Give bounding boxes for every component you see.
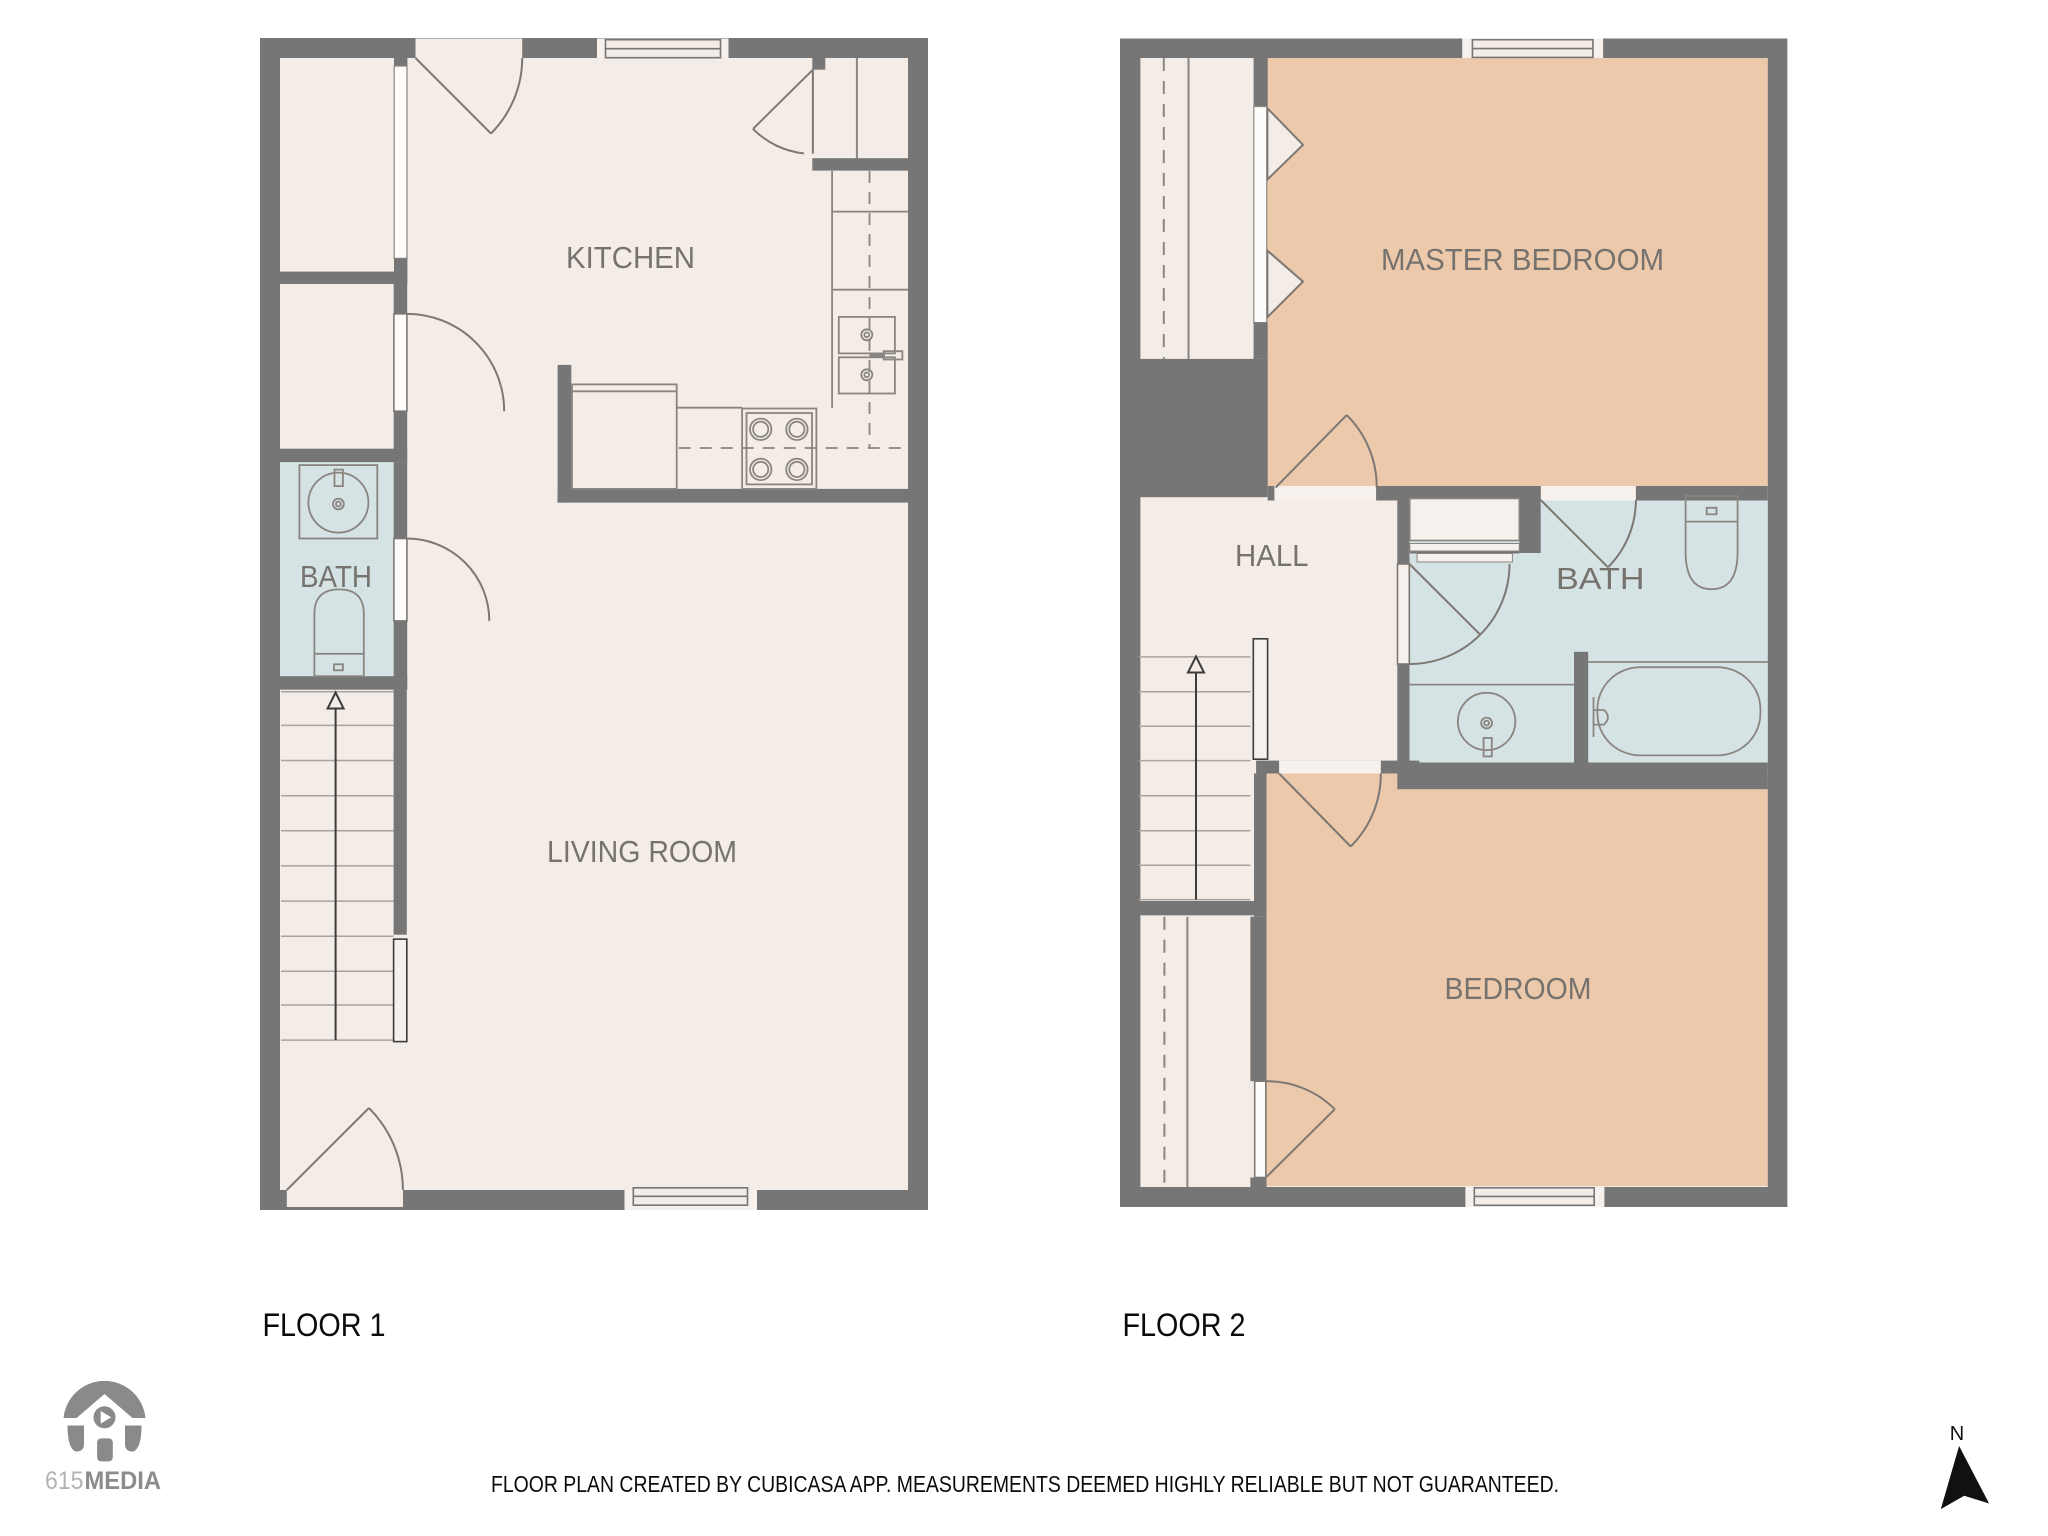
svg-text:MEDIA: MEDIA bbox=[85, 1467, 162, 1495]
svg-text:LIVING ROOM: LIVING ROOM bbox=[547, 834, 737, 869]
svg-text:MASTER BEDROOM: MASTER BEDROOM bbox=[1381, 242, 1664, 277]
svg-text:FLOOR PLAN CREATED BY CUBICASA: FLOOR PLAN CREATED BY CUBICASA APP. MEAS… bbox=[491, 1471, 1559, 1497]
svg-text:615: 615 bbox=[45, 1467, 84, 1495]
svg-text:BATH: BATH bbox=[1556, 561, 1645, 596]
svg-text:FLOOR 1: FLOOR 1 bbox=[263, 1307, 386, 1343]
svg-text:BEDROOM: BEDROOM bbox=[1445, 971, 1592, 1006]
svg-text:HALL: HALL bbox=[1235, 538, 1309, 573]
svg-text:FLOOR 2: FLOOR 2 bbox=[1123, 1307, 1246, 1343]
svg-text:KITCHEN: KITCHEN bbox=[566, 240, 695, 275]
svg-text:BATH: BATH bbox=[300, 559, 372, 594]
svg-text:N: N bbox=[1950, 1423, 1964, 1445]
